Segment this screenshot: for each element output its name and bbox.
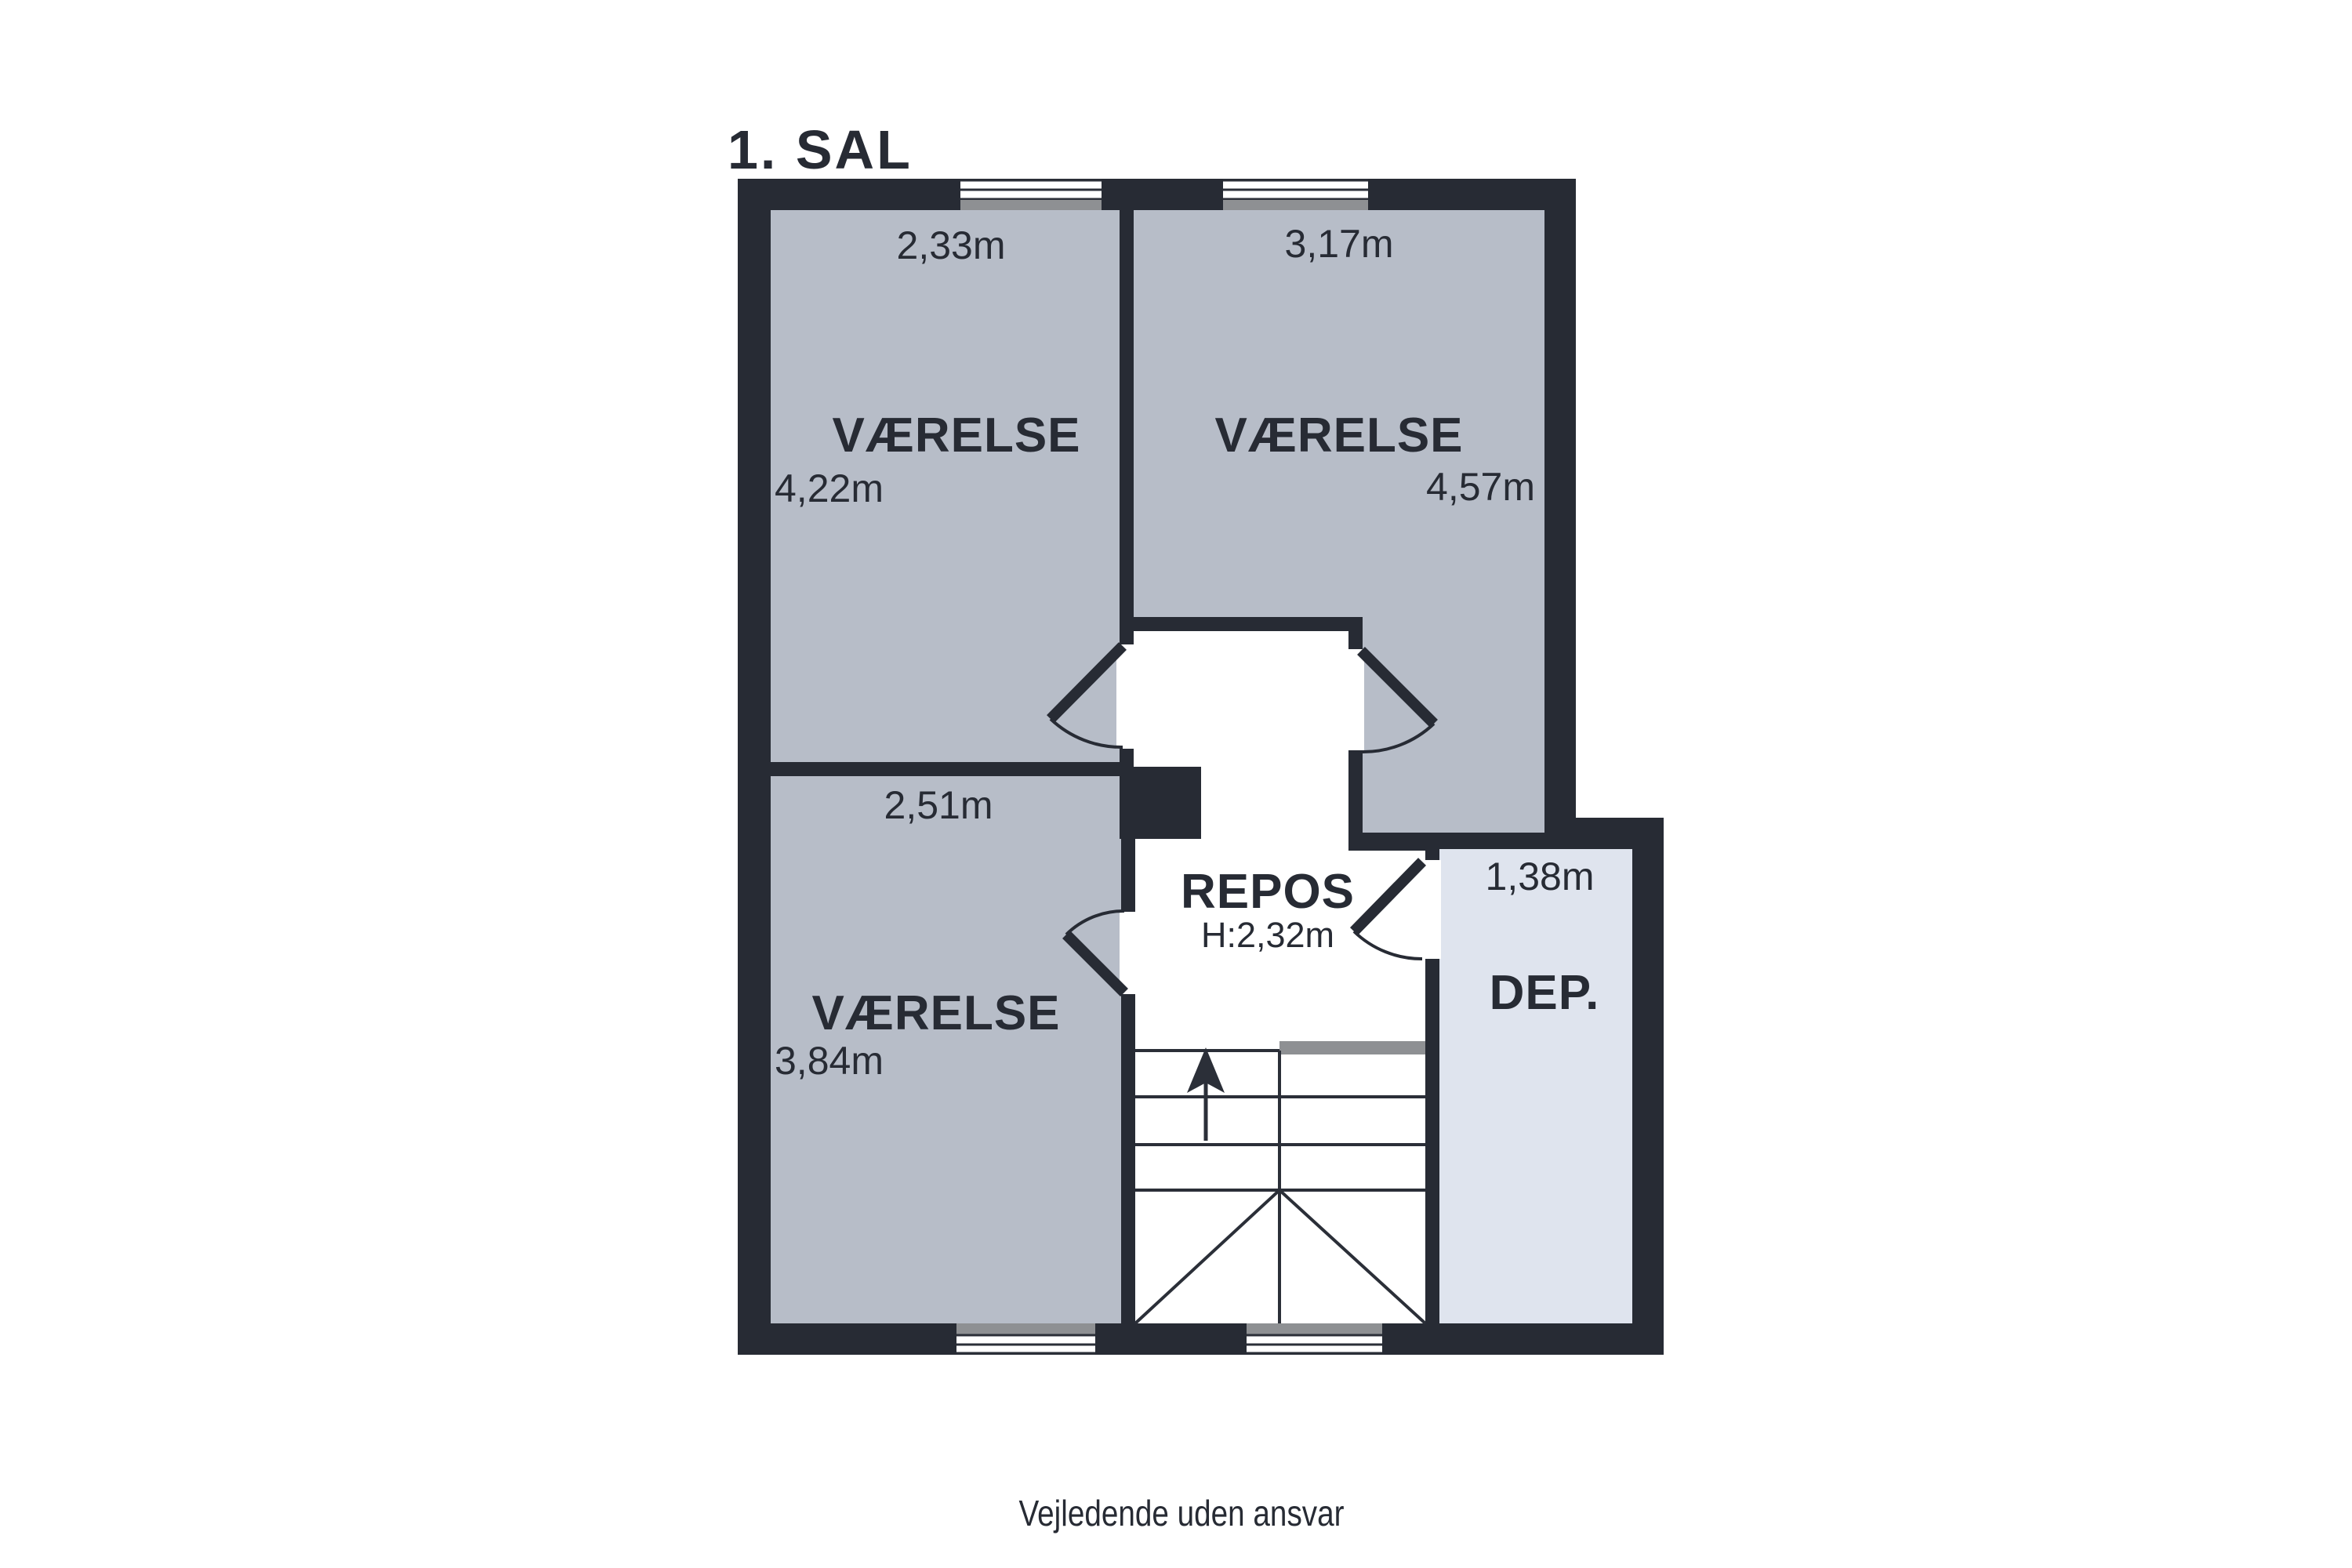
label-bedroom-top-right: VÆRELSE xyxy=(1214,408,1463,463)
storage-floor xyxy=(1439,849,1632,1323)
page-title: 1. SAL xyxy=(728,119,913,180)
dim-ceiling-landing: H:2,32m xyxy=(1201,915,1334,955)
disclaimer-text: Vejledende uden ansvar xyxy=(1019,1493,1345,1534)
opening-bedroom-top-left xyxy=(1116,644,1135,749)
window-bottom-left xyxy=(956,1323,1095,1354)
label-bedroom-top-left: VÆRELSE xyxy=(832,408,1080,463)
dim-width-bedroom-top-right: 3,17m xyxy=(1285,222,1394,266)
label-landing: REPOS xyxy=(1181,865,1355,919)
dim-depth-bedroom-top-right: 4,57m xyxy=(1426,465,1535,509)
dim-width-storage: 1,38m xyxy=(1486,855,1595,898)
dim-width-bedroom-top-left: 2,33m xyxy=(897,223,1006,267)
window-sill xyxy=(1223,200,1368,210)
window-top-right xyxy=(1223,180,1368,210)
window-top-left xyxy=(960,180,1102,210)
floor-plan: 1. SAL xyxy=(0,0,2352,1568)
label-storage: DEP. xyxy=(1490,966,1600,1020)
label-bedroom-bottom-left: VÆRELSE xyxy=(811,986,1060,1040)
dim-depth-bedroom-top-left: 4,22m xyxy=(775,466,884,510)
chimney-block xyxy=(1120,767,1201,839)
window-bottom-stairs xyxy=(1247,1323,1382,1354)
opening-bedroom-top-right xyxy=(1347,649,1364,750)
dim-width-bedroom-bottom-left: 2,51m xyxy=(884,783,993,827)
window-sill xyxy=(960,200,1102,210)
opening-storage xyxy=(1424,860,1441,959)
dim-depth-bedroom-bottom-left: 3,84m xyxy=(775,1039,884,1083)
opening-bedroom-bottom-left xyxy=(1120,912,1137,994)
stair-landing-edge xyxy=(1279,1041,1425,1054)
window-sill xyxy=(956,1323,1095,1334)
window-sill xyxy=(1247,1323,1382,1334)
